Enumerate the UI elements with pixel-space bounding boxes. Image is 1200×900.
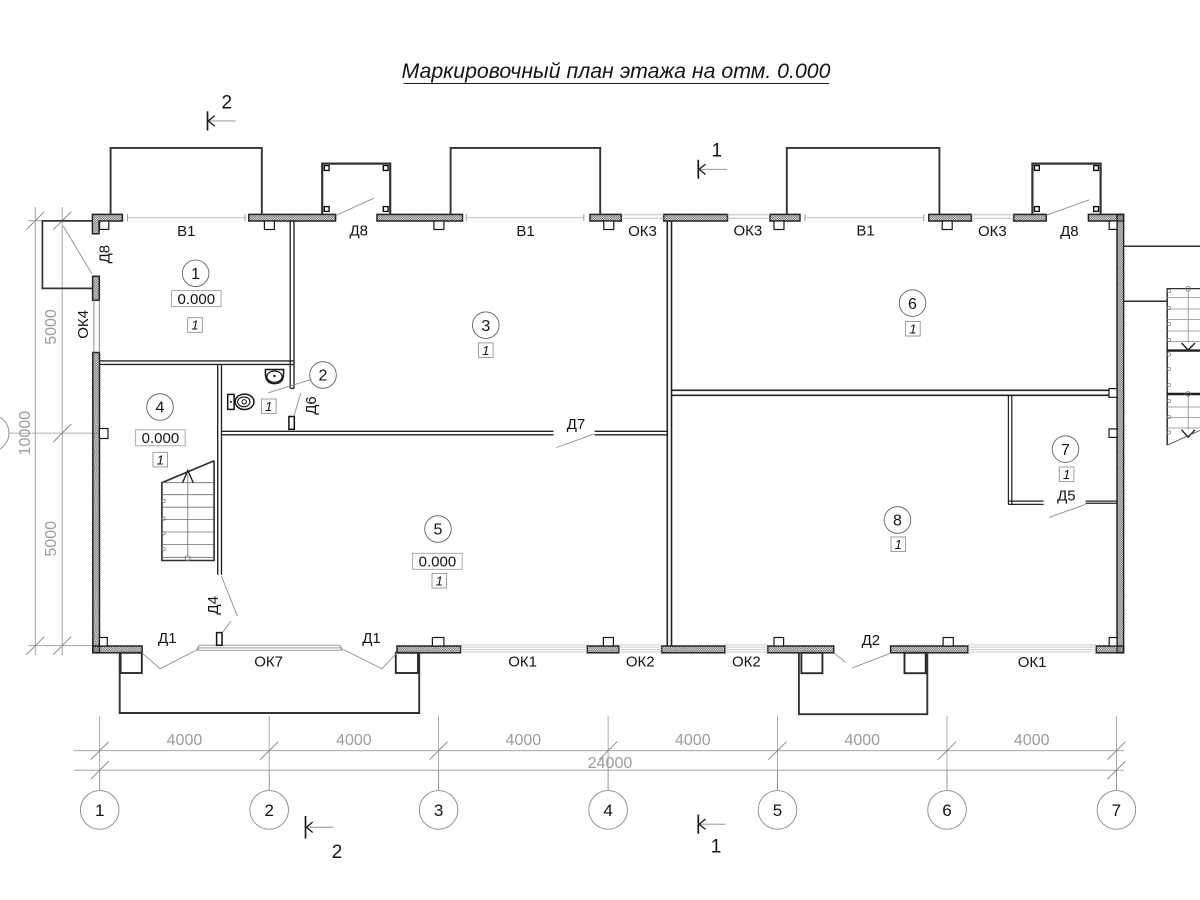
svg-text:В1: В1 (177, 223, 195, 240)
svg-text:ОК1: ОК1 (1018, 654, 1047, 671)
svg-text:1: 1 (95, 801, 104, 820)
svg-text:1: 1 (191, 266, 200, 283)
svg-text:10000: 10000 (17, 411, 34, 456)
svg-text:Д5: Д5 (1057, 488, 1076, 505)
svg-text:ОК1: ОК1 (508, 653, 537, 670)
svg-text:3: 3 (481, 318, 490, 335)
svg-text:Д6: Д6 (303, 396, 320, 415)
svg-text:ОК2: ОК2 (626, 653, 655, 670)
svg-text:1: 1 (711, 837, 722, 858)
svg-text:Д7: Д7 (567, 416, 586, 433)
svg-text:В1: В1 (856, 222, 874, 239)
svg-text:1: 1 (191, 318, 198, 333)
svg-text:1: 1 (157, 452, 164, 467)
svg-text:1: 1 (436, 573, 443, 588)
svg-text:5000: 5000 (43, 521, 60, 557)
svg-text:6: 6 (908, 296, 917, 313)
svg-text:0.000: 0.000 (178, 291, 216, 308)
svg-text:5000: 5000 (43, 309, 60, 345)
svg-text:Д8: Д8 (96, 245, 113, 264)
svg-text:4000: 4000 (336, 732, 372, 749)
svg-text:24000: 24000 (588, 755, 633, 772)
svg-text:0.000: 0.000 (142, 430, 180, 447)
svg-text:Маркировочный план этажа на от: Маркировочный план этажа на отм. 0.000 (402, 59, 831, 83)
svg-text:4000: 4000 (844, 732, 880, 749)
svg-text:4000: 4000 (506, 732, 542, 749)
svg-text:3: 3 (434, 801, 443, 820)
svg-text:4: 4 (603, 801, 612, 820)
svg-text:ОК3: ОК3 (628, 223, 657, 240)
svg-text:ОК4: ОК4 (75, 310, 92, 339)
svg-text:Д1: Д1 (362, 630, 381, 647)
svg-text:ОК2: ОК2 (732, 653, 761, 670)
svg-text:2: 2 (332, 842, 343, 863)
svg-text:ОК3: ОК3 (734, 223, 763, 240)
svg-text:4000: 4000 (1014, 732, 1050, 749)
svg-text:1: 1 (1063, 467, 1070, 482)
svg-text:4000: 4000 (675, 732, 711, 749)
svg-text:5: 5 (773, 801, 782, 820)
svg-text:5: 5 (434, 522, 443, 539)
svg-text:2: 2 (264, 801, 273, 820)
svg-text:1: 1 (895, 537, 902, 552)
svg-text:7: 7 (1061, 442, 1070, 459)
svg-text:Д2: Д2 (862, 632, 881, 649)
svg-text:В1: В1 (516, 223, 534, 240)
svg-text:Д8: Д8 (1060, 223, 1079, 240)
svg-text:ОК3: ОК3 (978, 223, 1007, 240)
svg-text:Д4: Д4 (205, 596, 222, 615)
svg-text:Д8: Д8 (349, 222, 368, 239)
svg-text:Д1: Д1 (158, 630, 177, 647)
svg-text:2: 2 (222, 93, 233, 114)
svg-text:7: 7 (1112, 801, 1121, 820)
svg-text:1: 1 (712, 141, 723, 162)
svg-text:8: 8 (893, 513, 902, 530)
svg-text:4: 4 (156, 400, 165, 417)
svg-text:4000: 4000 (167, 732, 203, 749)
svg-text:0.000: 0.000 (419, 554, 457, 571)
svg-text:1: 1 (482, 343, 489, 358)
svg-text:ОК7: ОК7 (254, 653, 283, 670)
svg-text:1: 1 (265, 399, 272, 414)
svg-text:2: 2 (319, 368, 328, 385)
svg-text:6: 6 (942, 801, 951, 820)
svg-text:1: 1 (909, 321, 916, 336)
